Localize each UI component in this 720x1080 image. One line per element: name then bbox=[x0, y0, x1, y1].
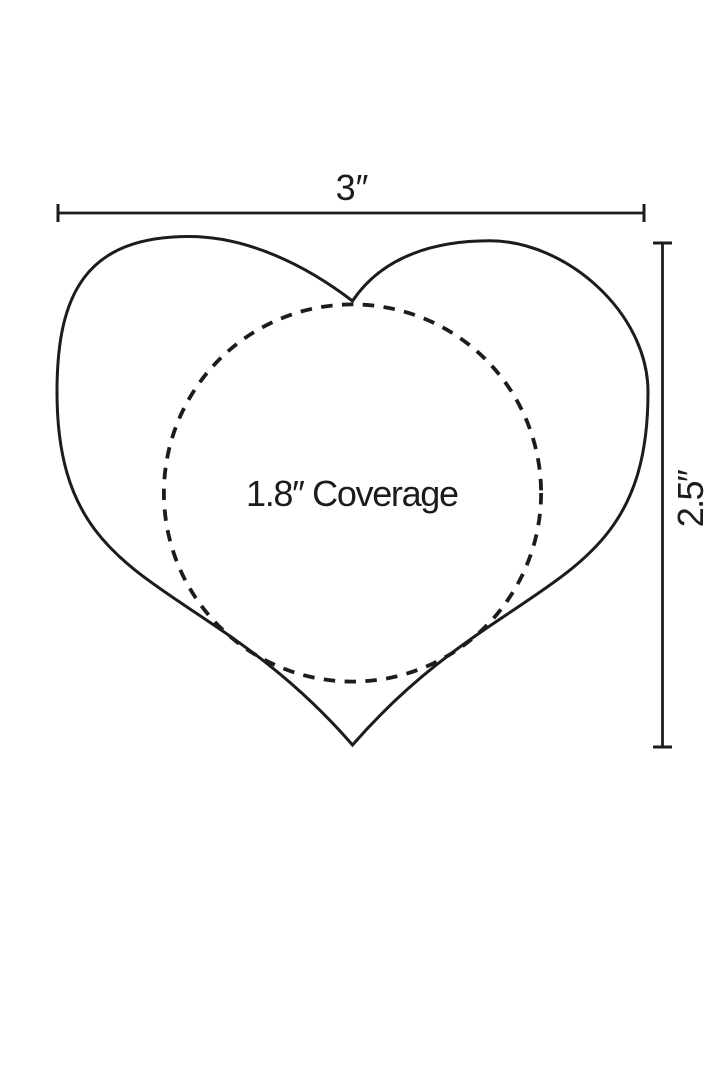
svg-text:1.8″ Coverage: 1.8″ Coverage bbox=[246, 473, 459, 514]
svg-text:2.5″: 2.5″ bbox=[670, 469, 711, 527]
svg-text:3″: 3″ bbox=[336, 167, 369, 208]
